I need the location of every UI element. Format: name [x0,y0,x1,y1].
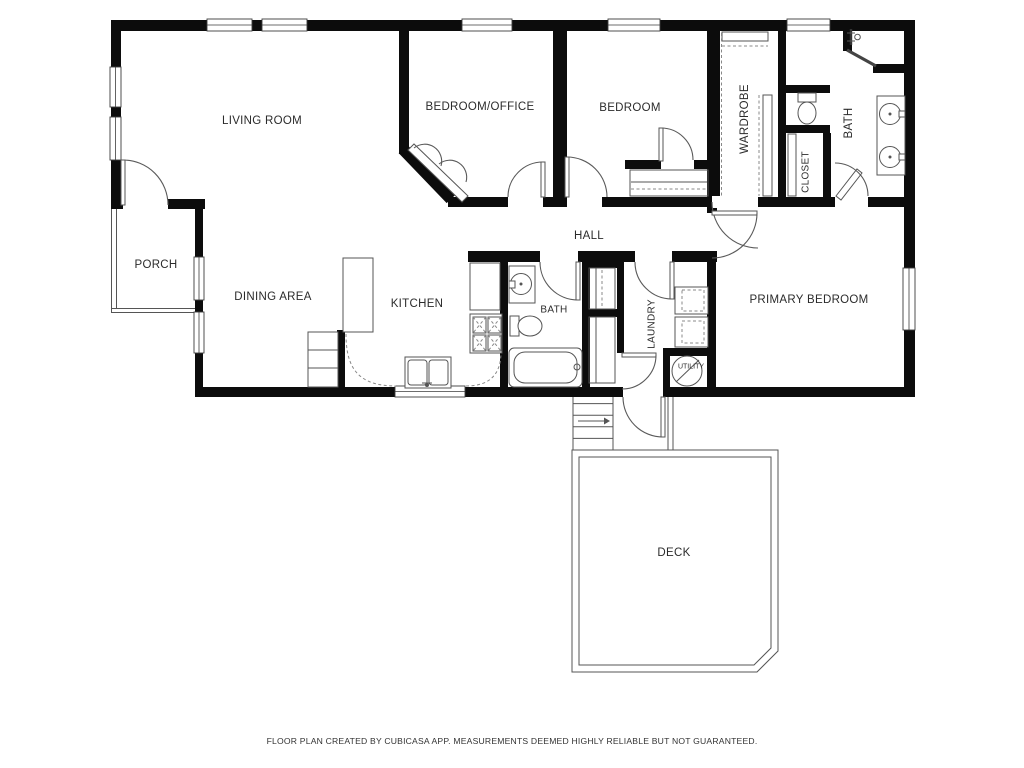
mid-bath-door [540,262,580,300]
bedroom-door [565,157,607,197]
floor-plan: LIVING ROOM BEDROOM/OFFICE BEDROOM WARDR… [0,0,1024,768]
top-bath-fixtures [798,29,905,175]
window [787,19,830,31]
room-label-bath-top: BATH [843,107,855,138]
deck-stairs-icon [573,392,613,450]
room-label-hall: HALL [574,230,604,242]
deck-door [623,397,665,437]
bedroom-closet [630,170,708,196]
room-label-utility: UTILITY [678,364,704,371]
room-label-wardrobe: WARDROBE [739,84,751,154]
window [608,19,660,31]
window [262,19,307,31]
laundry-fixtures [672,287,708,386]
room-label-closet: CLOSET [801,151,812,193]
room-label-laundry: LAUNDRY [647,299,658,349]
primary-bedroom-door [712,211,757,258]
room-label-bath-mid: BATH [540,305,567,316]
window [462,19,512,31]
dryer-icon [675,317,708,347]
window [194,312,204,353]
window [903,268,915,330]
room-label-porch: PORCH [134,259,177,271]
mid-bath-fixtures [509,266,582,387]
kitchen-sink-icon [405,357,451,388]
room-label-bedroom-office: BEDROOM/OFFICE [426,101,535,113]
kitchen-counter [470,263,500,310]
window [207,19,252,31]
stove-icon [470,314,502,353]
bedroom-office-door [508,162,545,197]
toilet-icon [510,316,542,336]
sink-icon [509,266,535,303]
hall-closet-shelves [788,134,796,196]
window [194,257,204,300]
dining-shelves [308,332,338,387]
kitchen-cabinet [343,258,373,332]
kitchen-fixtures [343,258,502,388]
disclaimer-text: FLOOR PLAN CREATED BY CUBICASA APP. MEAS… [267,736,758,746]
floor-plan-drawing [0,0,1024,768]
shower-glass [847,50,876,66]
washer-icon [675,287,708,314]
room-label-living-room: LIVING ROOM [222,115,302,127]
window [110,67,121,107]
walls [111,20,915,397]
laundry-back-door [622,353,656,389]
room-label-bedroom: BEDROOM [599,102,661,114]
bedroom-closet-door [659,128,693,161]
room-label-dining-area: DINING AREA [234,291,311,303]
toilet-icon [798,93,816,124]
laundry-door [635,262,674,299]
room-label-primary-bedroom: PRIMARY BEDROOM [749,294,868,306]
room-label-kitchen: KITCHEN [391,298,444,310]
double-vanity-icon [877,96,905,175]
bathtub-icon [509,348,582,387]
top-bath-door [835,163,868,200]
window [110,117,121,160]
wardrobe-door [712,202,758,248]
room-label-deck: DECK [657,547,690,559]
linen-closets [589,268,615,383]
water-heater-icon [672,356,702,386]
